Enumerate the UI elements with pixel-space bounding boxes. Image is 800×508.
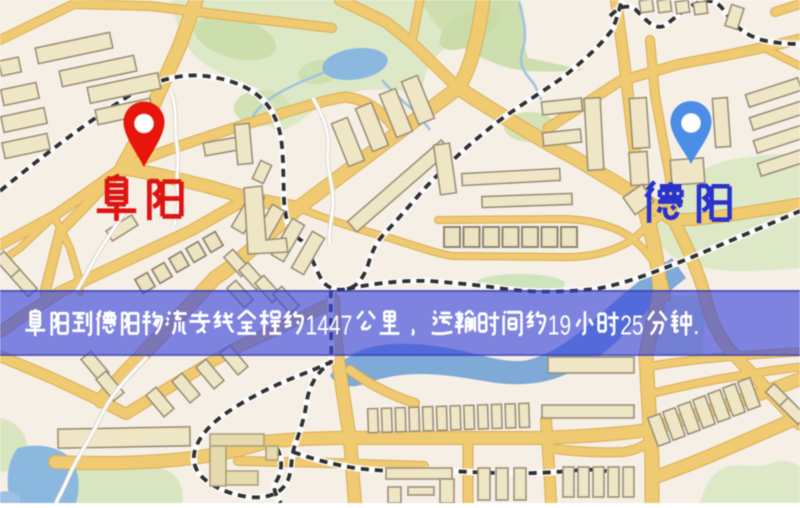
svg-text:.: . [693,310,700,340]
svg-text:19: 19 [548,310,571,341]
svg-text:1447: 1447 [306,310,353,341]
svg-text:25: 25 [620,310,643,341]
